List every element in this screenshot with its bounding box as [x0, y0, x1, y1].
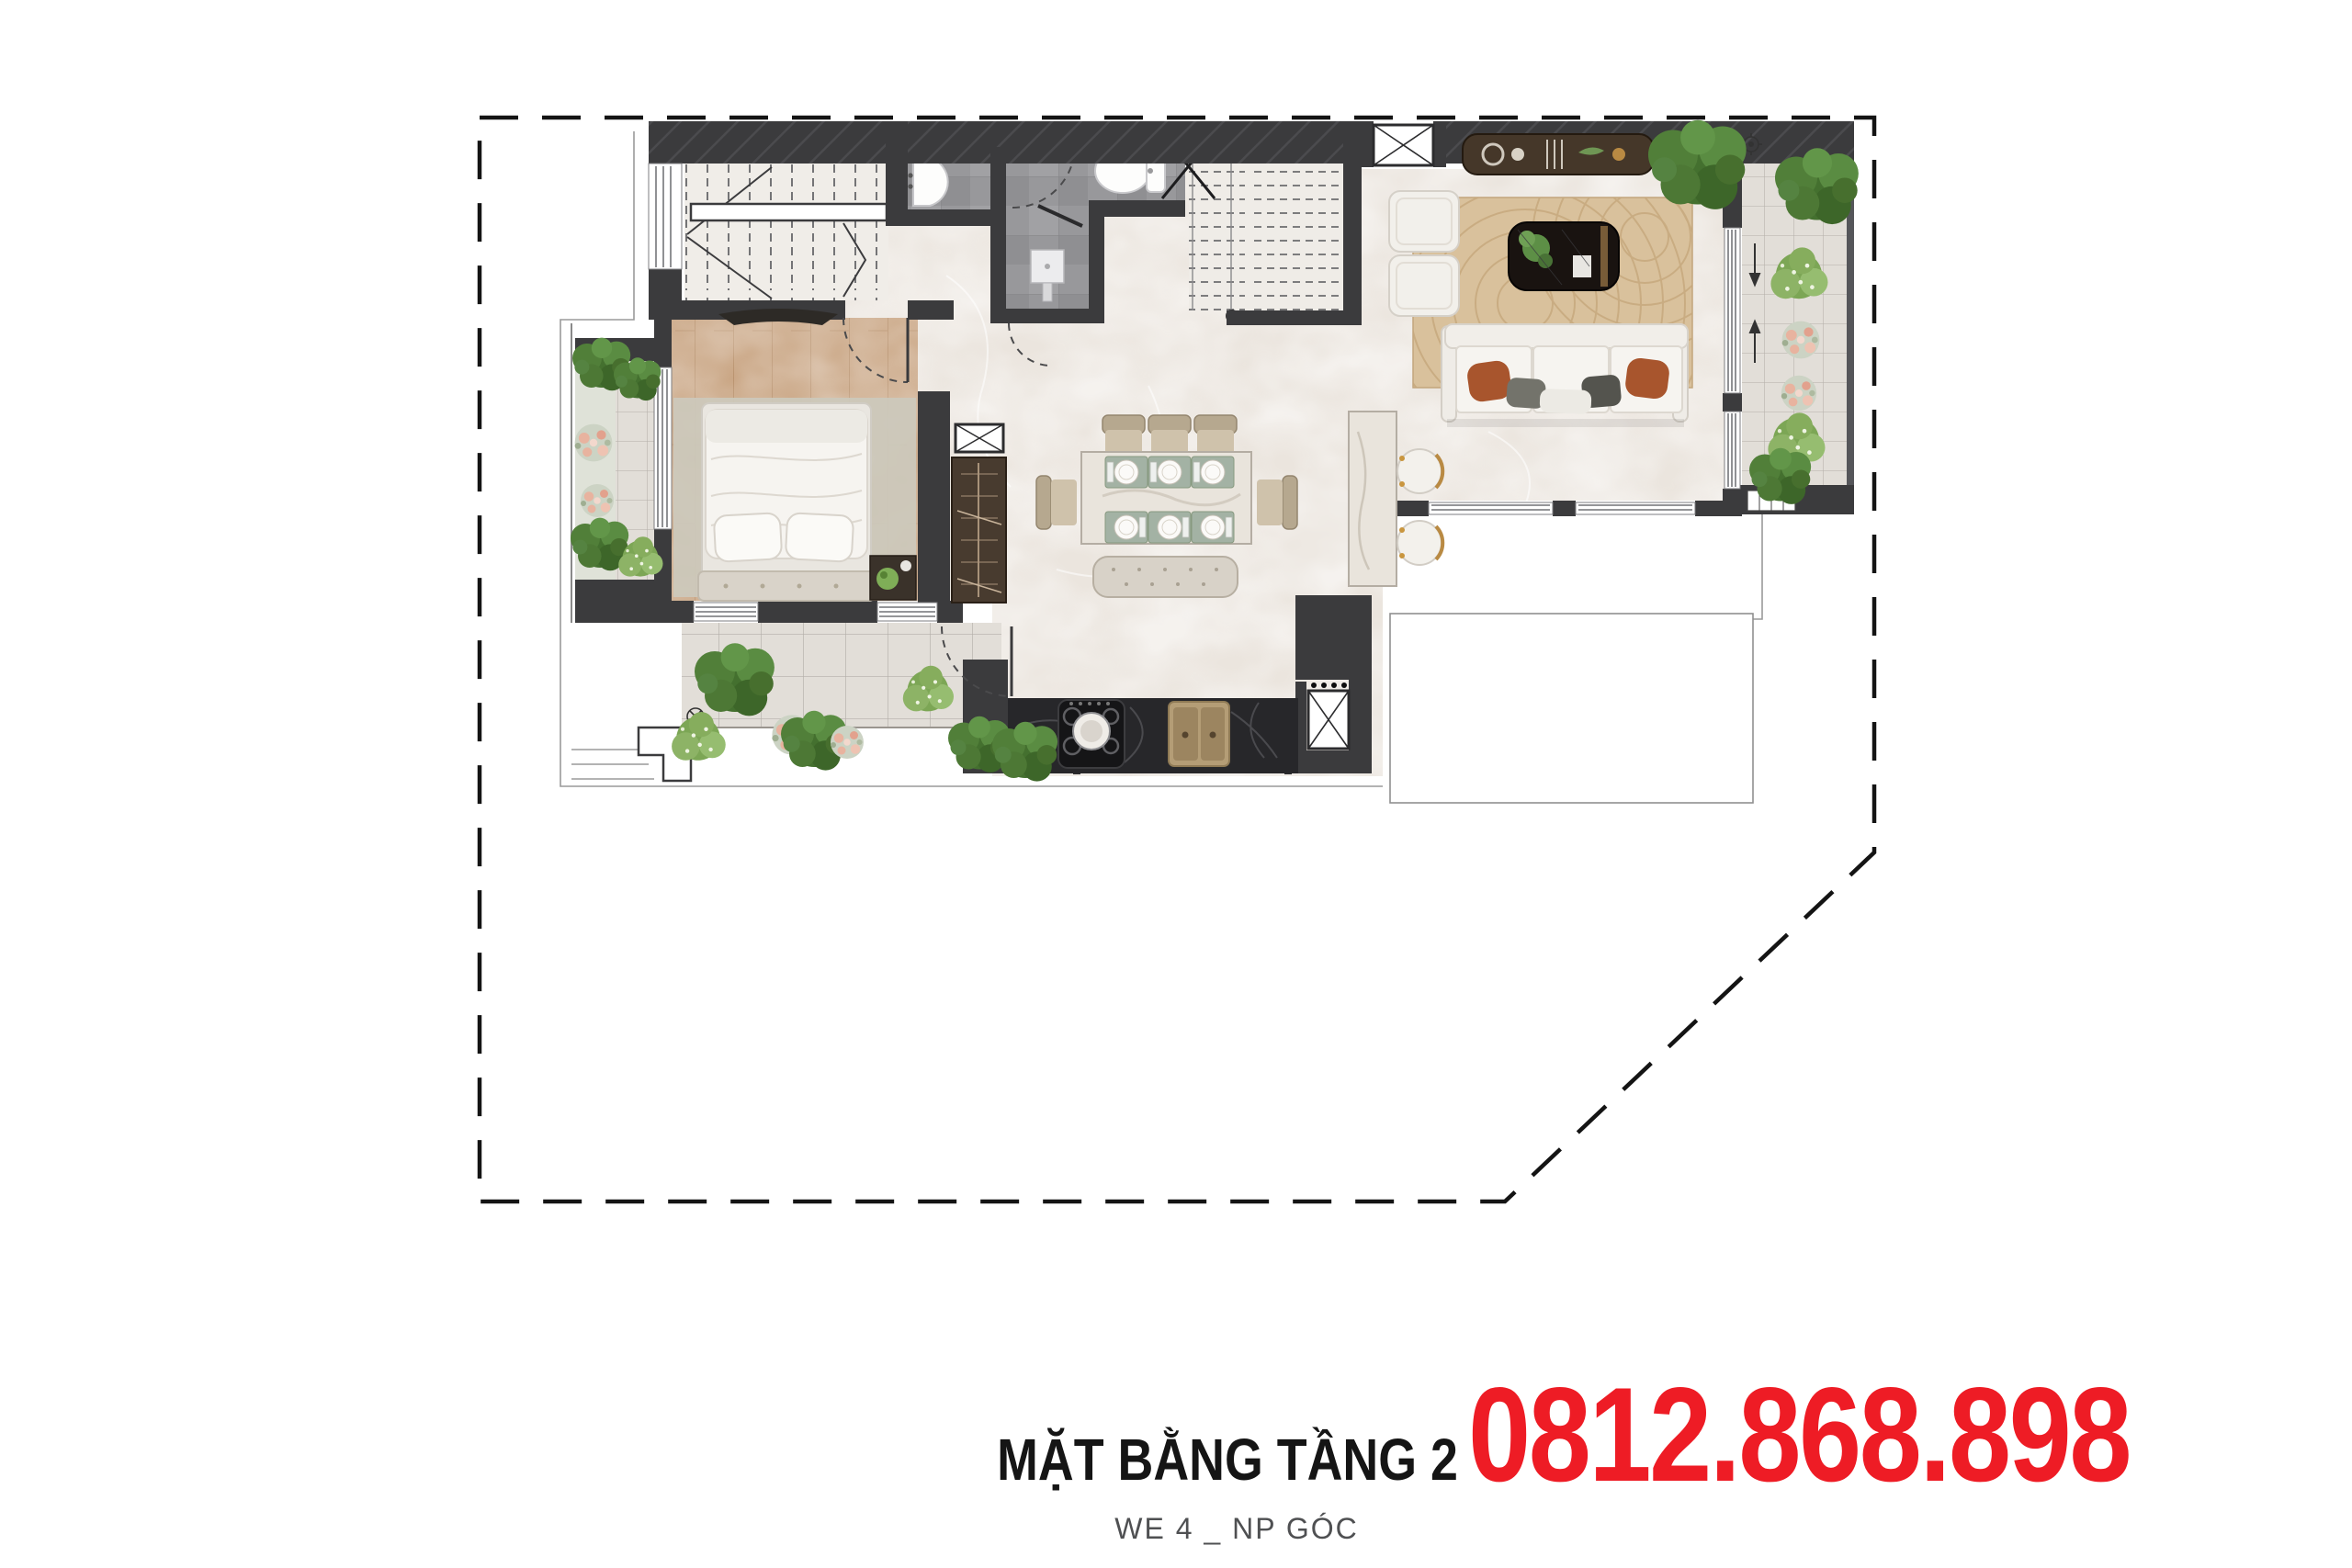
nightstand: [870, 556, 916, 600]
plan-subtitle: WE 4 _ NP GÓC: [1114, 1512, 1358, 1546]
elevator-shaft: [1374, 125, 1433, 165]
duct-shaft: [955, 424, 1003, 452]
floor-plan-drawing: [0, 0, 2352, 1568]
bar-stool: [1397, 521, 1442, 565]
stairs-main: [684, 164, 888, 300]
floor-plan-page: MẶT BẰNG TẦNG 2 WE 4 _ NP GÓC 0812.868.8…: [0, 0, 2352, 1568]
plan-title: MẶT BẰNG TẦNG 2: [997, 1426, 1458, 1494]
contact-phone-number: 0812.868.898: [1468, 1358, 2130, 1512]
coffee-table: [1509, 222, 1619, 290]
double-sink-icon: [1169, 702, 1229, 766]
bar-stool: [1397, 449, 1442, 493]
tv-console: [1463, 134, 1654, 175]
wardrobe: [952, 457, 1006, 603]
bed: [698, 403, 875, 601]
sofa: [1442, 324, 1688, 427]
stair-handrail: [691, 204, 887, 220]
dining-bench: [1093, 557, 1238, 597]
cooktop-icon: [1058, 700, 1125, 768]
oven-icon: [1308, 682, 1349, 749]
